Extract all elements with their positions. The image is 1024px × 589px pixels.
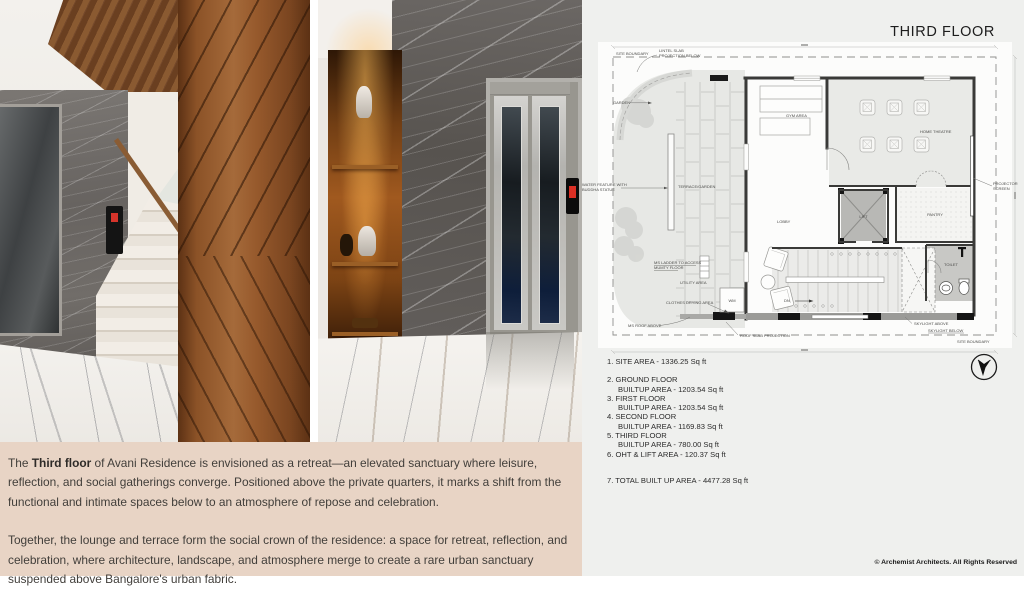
label-ms-ladder-2: MUMTY FLOOR (654, 265, 684, 270)
caption-paragraph-2: Together, the lounge and terrace form th… (8, 531, 572, 589)
label-lobby: LOBBY (777, 219, 791, 224)
photo-elevator-lobby (318, 0, 582, 442)
label-home-theatre: HOME THEATRE (920, 129, 952, 134)
elevator-door-left (494, 96, 528, 330)
elevator-indicator-panel (566, 178, 579, 214)
indicator-red-glyph (569, 186, 576, 198)
area-item: 4. SECOND FLOORBUILTUP AREA - 1169.83 Sq… (607, 412, 827, 431)
projector-screen-line (971, 136, 974, 216)
niche-shelf (332, 262, 398, 266)
label-garden: GARDEN (613, 100, 630, 105)
statue-figurine (356, 86, 372, 118)
elevator-call-panel (106, 206, 123, 254)
niche-shelf (332, 165, 398, 169)
elevator-header (490, 82, 570, 95)
photo-staircase-hall (0, 0, 310, 442)
third-floor-plan: SITE BOUNDARY LINTEL SLAB PROJECTION BEL… (580, 36, 1024, 356)
caption-panel: The Third floor of Avani Residence is en… (0, 442, 582, 576)
label-lift: LIFT (859, 214, 868, 219)
area-item-total: 7. TOTAL BUILT UP AREA - 4477.28 Sq ft (607, 476, 827, 485)
label-projector-2: SCREEN (993, 186, 1010, 191)
label-site-boundary-top: SITE BOUNDARY (616, 51, 649, 56)
door-glass (501, 106, 522, 324)
puja-niche (328, 50, 402, 345)
niche-shelf (332, 332, 398, 336)
elevator-door-partial (0, 104, 62, 336)
area-item: 1. SITE AREA - 1336.25 Sq ft (607, 357, 827, 366)
area-item: 3. FIRST FLOORBUILTUP AREA - 1203.54 Sq … (607, 394, 827, 413)
statue-figurine-dark (340, 234, 353, 256)
label-dn: DN (784, 298, 790, 303)
label-skylight-below: SKYLIGHT BELOW (928, 328, 963, 333)
caption-paragraph-1: The Third floor of Avani Residence is en… (8, 454, 572, 512)
architect-logo (966, 350, 1002, 386)
copyright: © Archemist Architects. All Rights Reser… (875, 559, 1018, 566)
ganesha-statue (358, 226, 376, 256)
caption-bold-third-floor: Third floor (32, 456, 91, 470)
label-utility-area: UTILITY AREA (680, 280, 707, 285)
label-terrace-garden: TERRACE/GARDEN (678, 184, 715, 189)
area-item: 5. THIRD FLOORBUILTUP AREA - 780.00 Sq f… (607, 431, 827, 450)
label-wm: WM (728, 298, 735, 303)
floor-reflection (486, 332, 574, 390)
label-gym-area: GYM AREA (786, 113, 807, 118)
water-feature-planter (668, 134, 674, 230)
floor-indicator-light (111, 213, 118, 222)
label-water-feature-2: BUDDHA STATUE (582, 187, 615, 192)
label-skylight-above: SKYLIGHT ABOVE (914, 321, 949, 326)
label-site-boundary-bottom: SITE BOUNDARY (957, 339, 990, 344)
area-item: 2. GROUND FLOORBUILTUP AREA - 1203.54 Sq… (607, 375, 827, 394)
door-glass (539, 106, 560, 324)
area-item: 6. OHT & LIFT AREA - 120.37 Sq ft (607, 450, 827, 459)
niche-ornament (352, 318, 378, 328)
label-toilet: TOILET (944, 262, 958, 267)
label-ms-roof: MS ROOF ABOVE (628, 323, 662, 328)
label-lintel-2: PROJECTION BELOW (659, 53, 701, 58)
label-pantry: PANTRY (927, 212, 943, 217)
area-statement: 1. SITE AREA - 1336.25 Sq ft 2. GROUND F… (607, 357, 827, 485)
label-roof-slab: ROOF SLAB PROJECTION (740, 333, 790, 338)
wood-door-panel (178, 0, 310, 442)
label-clothes-drying: CLOTHES DRYING AREA (666, 300, 714, 305)
elevator-door-right (532, 96, 566, 330)
